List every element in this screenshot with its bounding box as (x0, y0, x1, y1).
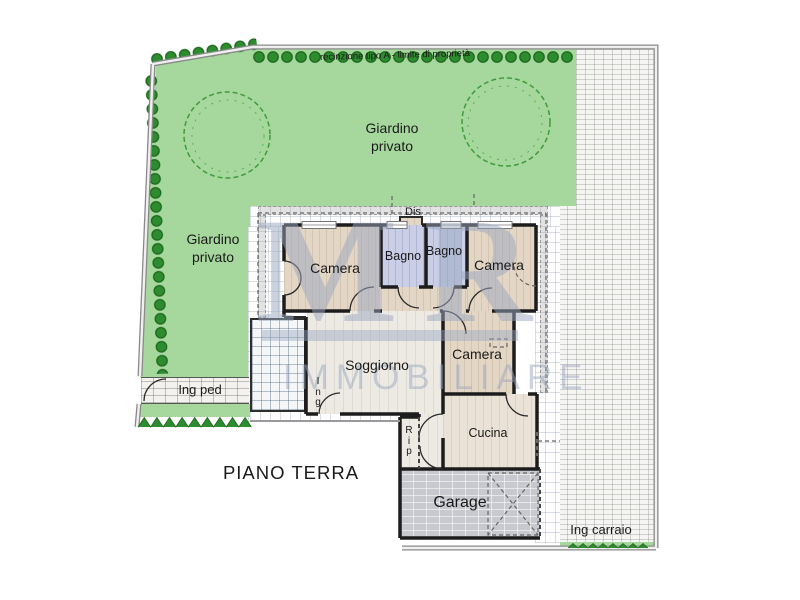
ing-ped-label: Ing ped (160, 382, 240, 398)
ing-label: I n g (311, 377, 325, 409)
camera-ne-label: Camera (459, 257, 539, 275)
bagno-e-label: Bagno (424, 244, 464, 260)
page-title: PIANO TERRA (211, 461, 371, 484)
plan-linework (0, 0, 800, 600)
camera-nw-label: Camera (295, 260, 375, 278)
rip-label: R i p (402, 426, 416, 458)
dis-label: Dis (400, 206, 426, 220)
ing-carraio-label: Ing carraio (551, 522, 651, 538)
camera-e-label: Camera (437, 346, 517, 364)
garage-label: Garage (410, 493, 510, 513)
cucina-label: Cucina (448, 426, 528, 442)
garden-top-label: Giardino privato (342, 120, 442, 155)
soggiorno-label: Soggiorno (327, 357, 427, 375)
garden-left-label: Giardino privato (163, 231, 263, 266)
bagno-w-label: Bagno (383, 249, 423, 265)
window-icon (302, 222, 512, 229)
floor-plan: MR IMMOBILIARE recinzione tipo A - limit… (0, 0, 800, 600)
